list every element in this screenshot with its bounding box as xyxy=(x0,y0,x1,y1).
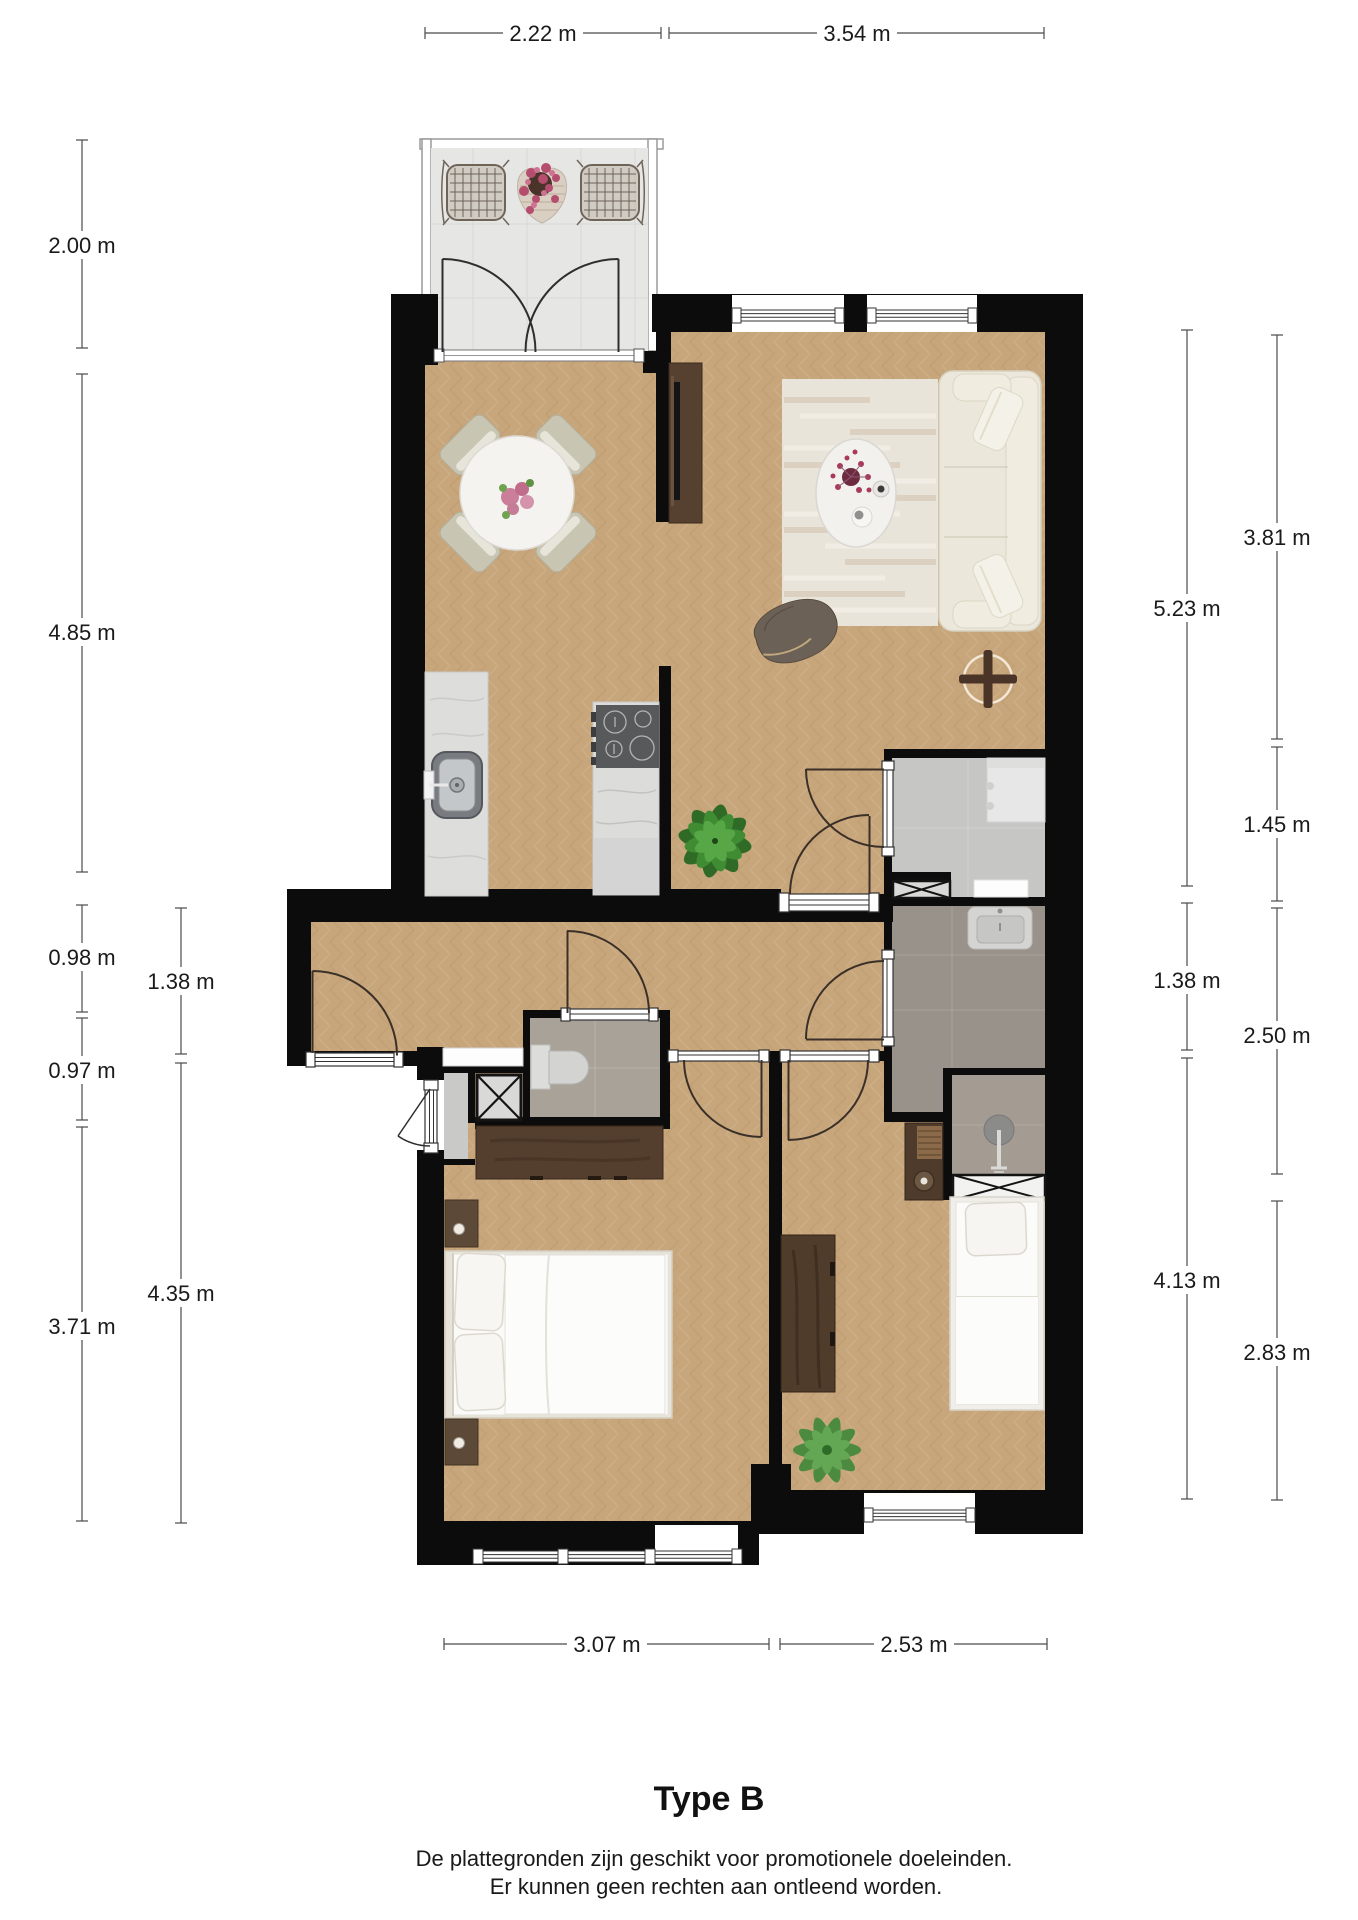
svg-text:2.22 m: 2.22 m xyxy=(509,21,576,46)
svg-text:1.38 m: 1.38 m xyxy=(147,969,214,994)
svg-text:Type B: Type B xyxy=(654,1780,765,1818)
svg-text:2.00 m: 2.00 m xyxy=(48,233,115,258)
svg-text:Er kunnen geen rechten aan ont: Er kunnen geen rechten aan ontleend word… xyxy=(490,1874,943,1899)
svg-text:2.53 m: 2.53 m xyxy=(880,1632,947,1657)
svg-text:2.83 m: 2.83 m xyxy=(1243,1340,1310,1365)
svg-text:1.38 m: 1.38 m xyxy=(1153,968,1220,993)
svg-text:De plattegronden zijn geschikt: De plattegronden zijn geschikt voor prom… xyxy=(416,1846,1013,1871)
svg-text:3.81 m: 3.81 m xyxy=(1243,525,1310,550)
svg-text:3.07 m: 3.07 m xyxy=(573,1632,640,1657)
svg-text:3.54 m: 3.54 m xyxy=(823,21,890,46)
svg-text:1.45 m: 1.45 m xyxy=(1243,812,1310,837)
svg-text:5.23 m: 5.23 m xyxy=(1153,596,1220,621)
svg-text:0.98 m: 0.98 m xyxy=(48,945,115,970)
svg-text:4.85 m: 4.85 m xyxy=(48,620,115,645)
svg-text:0.97 m: 0.97 m xyxy=(48,1058,115,1083)
svg-text:3.71 m: 3.71 m xyxy=(48,1314,115,1339)
svg-text:2.50 m: 2.50 m xyxy=(1243,1023,1310,1048)
svg-text:4.35 m: 4.35 m xyxy=(147,1281,214,1306)
svg-text:4.13 m: 4.13 m xyxy=(1153,1268,1220,1293)
